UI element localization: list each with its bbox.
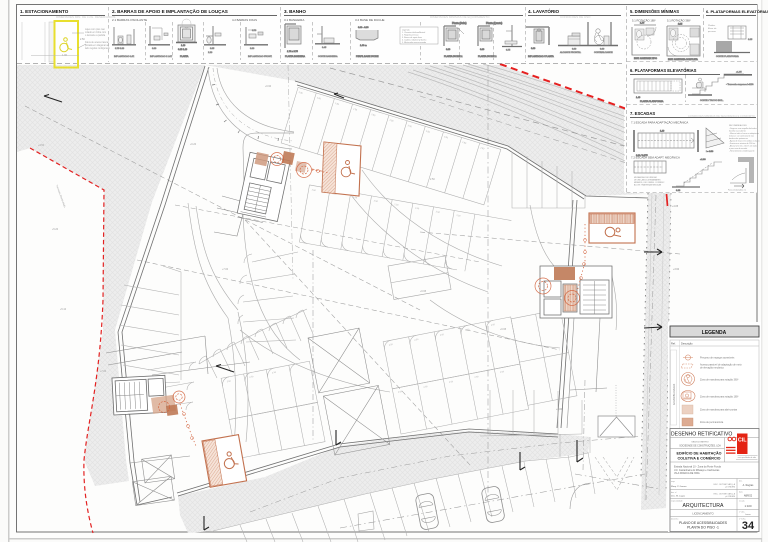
svg-text:especialidade: especialidade [671,501,683,503]
svg-text:INST. SANITARIA COMPLETA: INST. SANITARIA COMPLETA [668,58,698,61]
svg-text:CIL: CIL [738,438,747,444]
svg-text:1.60 m: 1.60 m [360,45,367,47]
svg-text:PLANTA DO PISO -1: PLANTA DO PISO -1 [687,525,719,529]
svg-text:7.1 ESCADA PARA ADAPTAÇÃO MECÂ: 7.1 ESCADA PARA ADAPTAÇÃO MECÂNICA [631,120,688,125]
svg-text:mais qualidade de vida: mais qualidade de vida [738,457,756,459]
svg-text:+6.95: +6.95 [500,328,507,331]
svg-text:p/ ORDEM: p/ ORDEM [725,496,735,498]
svg-text:p/ ORDEM: p/ ORDEM [725,487,735,489]
svg-text:5. DIMENSÕES MÍNIMAS: 5. DIMENSÕES MÍNIMAS [630,9,679,14]
svg-text:DESENHO RETIFICATIVO: DESENHO RETIFICATIVO [671,432,732,438]
svg-text:PERFIL BASE DUCHE: PERFIL BASE DUCHE [356,55,379,58]
svg-text:- Revestimento antiderrapante: - Revestimento antiderrapante [729,150,754,153]
svg-text:+6.20: +6.20 [190,143,197,146]
svg-text:+2.80: +2.80 [700,159,706,161]
svg-text:Percurso de espaços acessíveis: Percurso de espaços acessíveis [700,357,735,360]
svg-text:0.25 1.10: 0.25 1.10 [178,49,188,51]
svg-text:Faixa sinalizadora no: Faixa sinalizadora no [728,189,746,192]
svg-text:A DOIS TRAVESSAS MEDIDAS: A DOIS TRAVESSAS MEDIDAS [634,184,662,187]
svg-text:2.1 BARRAS OSCILANTE: 2.1 BARRAS OSCILANTE [112,18,147,22]
svg-text:de elevação mecânico: de elevação mecânico [700,367,724,370]
svg-text:ARQUITECTURA: ARQUITECTURA [683,503,724,509]
svg-text:Zona de manobra para rotação 3: Zona de manobra para rotação 360º [700,378,739,382]
svg-text:34: 34 [742,520,755,532]
svg-text:DIMENSOES MINIMAS DE EQUIPAMEN: DIMENSOES MINIMAS DE EQUIPAMENTO [430,15,490,19]
svg-text:Planta (Quarto): Planta (Quarto) [486,22,503,25]
svg-text:2.50: 2.50 [80,38,85,41]
svg-text:+4.05: +4.05 [672,205,679,208]
svg-text:1.70 x 0.75: 1.70 x 0.75 [287,51,299,53]
svg-text:RECOMENDACOES: RECOMENDACOES [729,124,747,127]
svg-text:2.50: 2.50 [430,178,435,181]
svg-text:ABR/22: ABR/22 [744,495,753,498]
svg-text:CORTE PLATAFORMA: CORTE PLATAFORMA [716,55,739,58]
svg-text:IMPLANTACAO FRONT.: IMPLANTACAO FRONT. [248,55,272,58]
svg-text:+7.00: +7.00 [222,268,229,271]
svg-text:percurso: percurso [708,31,717,33]
svg-text:Zona de manobra para rotação 1: Zona de manobra para rotação 180º [700,395,739,399]
svg-text:6. PLATAFORMAS ELEVATÓRIAS: 6. PLATAFORMAS ELEVATÓRIAS [706,9,768,14]
svg-text:Eleva. de: Eleva. de [708,28,717,30]
svg-text:ACESSIBILIDADES: ACESSIBILIDADES [673,383,676,405]
svg-text:colado em linha com: colado em linha com [85,32,106,34]
svg-text:des. nº: des. nº [671,491,677,494]
svg-text:PLANTA: PLANTA [180,55,189,58]
svg-text:CONDICOES MINIMAS DE SEGURANCA: CONDICOES MINIMAS DE SEGURANCA E CONFORT… [688,114,755,118]
svg-text:+4.50: +4.50 [38,144,45,147]
svg-text:PLANTA DUCHE 2: PLANTA DUCHE 2 [478,55,497,58]
svg-text:5. Misturador monocomando: 5. Misturador monocomando [402,41,426,44]
svg-text:CORTE / TROCO INCL.: CORTE / TROCO INCL. [700,100,724,102]
svg-text:3. BANHO: 3. BANHO [284,9,306,14]
svg-text:louvre: louvre [745,514,751,516]
svg-text:Descrição: Descrição [681,342,693,346]
svg-text:PLANTA DUCHE 1: PLANTA DUCHE 1 [444,55,463,58]
svg-text:+5.20: +5.20 [52,228,59,231]
svg-text:0.75 0.30: 0.75 0.30 [115,48,125,50]
svg-text:+3.60: +3.60 [673,268,680,271]
svg-text:Zona de permanência: Zona de permanência [700,421,724,424]
svg-text:IMPLANTACAO LAT.: IMPLANTACAO LAT. [114,55,135,58]
svg-text:Des. M. Lagos: Des. M. Lagos [671,496,686,498]
svg-text:lado regular configurado: lado regular configurado [85,47,110,50]
svg-text:IMPLANTACAO / PLANTA: IMPLANTACAO / PLANTA [528,55,554,58]
svg-text:CONDICOES DE USO: CONDICOES DE USO [560,15,591,19]
svg-text:1. ESTACIONAMENTO: 1. ESTACIONAMENTO [20,9,69,14]
svg-text:des.: des. [739,481,743,483]
svg-text:3.2 BASE DE DUCHE: 3.2 BASE DE DUCHE [355,18,385,22]
svg-text:Ref.: Ref. [671,342,676,346]
svg-text:+1.35: +1.35 [736,72,742,74]
svg-text:7.2 ESCADA SEM ADAPT. MECÂNICA: 7.2 ESCADA SEM ADAPT. MECÂNICA [631,155,680,160]
svg-text:LICENCIAMENTO: LICENCIAMENTO [692,512,713,516]
svg-text:INST. SANITARIA TIPO: INST. SANITARIA TIPO [634,57,657,60]
svg-text:PLANTA BANHEIRA: PLANTA BANHEIRA [285,55,306,58]
svg-text:PLANO DE ACESSIBILIDADES: PLANO DE ACESSIBILIDADES [679,521,728,525]
svg-text:+6.95: +6.95 [420,290,427,293]
svg-text:2. BARRAS DE APOIO E IMPLANTAÇ: 2. BARRAS DE APOIO E IMPLANTAÇÃO DE LOUÇ… [112,8,228,14]
svg-text:CORTE/ALCANCE: CORTE/ALCANCE [594,51,613,54]
svg-text:ALCANCE FRONTAL: ALCANCE FRONTAL [560,51,582,54]
svg-text:4. LAVATÓRIO: 4. LAVATÓRIO [528,7,560,14]
svg-text:+6.90: +6.90 [265,85,272,88]
svg-text:6. PLATAFORMAS ELEVATÓRIAS: 6. PLATAFORMAS ELEVATÓRIAS [630,68,697,73]
svg-text:1:100: 1:100 [745,504,752,508]
svg-text:escala: escala [739,501,745,503]
svg-text:o lancante a partida: o lancante a partida [85,34,106,37]
svg-text:1.90: 1.90 [62,53,68,57]
svg-text:Faixa de acesso lateral: Faixa de acesso lateral [85,41,109,44]
svg-text:Lajes com piso nao: Lajes com piso nao [85,29,106,31]
svg-text:Planta (Suite): Planta (Suite) [452,22,467,25]
svg-text:IMPLANTACAO 2 LAT.: IMPLANTACAO 2 LAT. [150,55,173,58]
svg-text:7. ESCADAS: 7. ESCADAS [630,111,655,116]
svg-text:resp.: resp. [671,480,676,483]
svg-text:0.80 - 0.90: 0.80 - 0.90 [358,27,369,29]
svg-text:• Travessia suspensa i=12%: • Travessia suspensa i=12% [726,83,754,86]
svg-text:DIMENSOES MIN. DE LUG. RESERVA: DIMENSOES MIN. DE LUG. RESERVADOS [56,15,115,19]
svg-text:EDIFÍCIO DE HABITAÇÃO: EDIFÍCIO DE HABITAÇÃO [677,451,722,456]
svg-text:4.2 BARRAS FIXAS: 4.2 BARRAS FIXAS [232,18,257,22]
svg-text:VILA FRANCA DE XIRA: VILA FRANCA DE XIRA [674,472,700,475]
svg-text:desenho: desenho [671,519,678,521]
svg-text:3.1 BANHEIRA: 3.1 BANHEIRA [284,18,304,22]
svg-text:i = 0.50: i = 0.50 [706,151,714,153]
svg-text:Marq. P. Gomes: Marq. P. Gomes [671,485,688,488]
svg-text:Platafor.: Platafor. [708,24,716,27]
svg-text:SOCIEDADE DE CONSTRUÇÕES, LDA: SOCIEDADE DE CONSTRUÇÕES, LDA [679,445,721,448]
svg-text:LEGENDA: LEGENDA [702,330,727,336]
svg-text:Zona de manobra para abrir po: Zona de manobra para abrir portas [700,409,738,412]
svg-text:COLETIVA E COMÉRCIO: COLETIVA E COMÉRCIO [677,456,720,461]
svg-text:CORTE BANHEIRA: CORTE BANHEIRA [318,55,338,58]
svg-text:SELECIONETRO: SELECIONETRO [691,442,708,444]
svg-text:+4.00: +4.00 [556,408,563,411]
svg-text:pintada em diagonal ao: pintada em diagonal ao [85,44,110,47]
svg-text:+7.00: +7.00 [100,370,107,373]
svg-text:+5.10: +5.10 [60,308,67,311]
svg-text:PLANTA PLATAFORMA: PLANTA PLATAFORMA [640,100,664,103]
svg-text:A. Regras: A. Regras [743,484,754,487]
